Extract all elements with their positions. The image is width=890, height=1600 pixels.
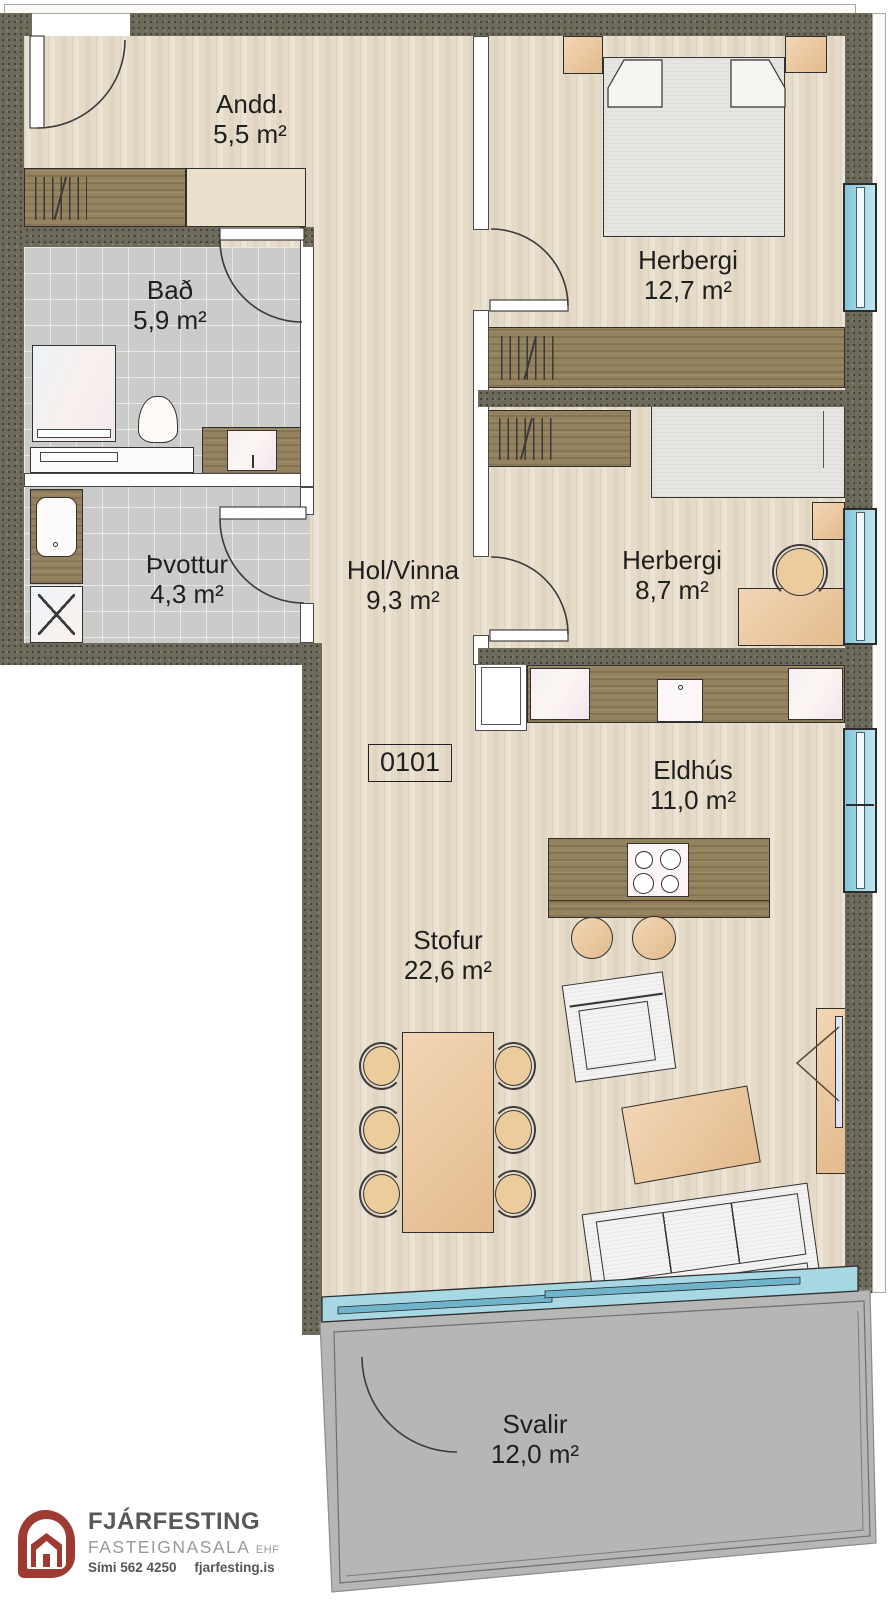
washing-machine-x xyxy=(30,586,83,643)
room-label-andd: Andd.5,5 m² xyxy=(175,90,325,150)
chair-back xyxy=(359,1170,404,1218)
room-label-stofur: Stofur22,6 m² xyxy=(373,926,523,986)
kitchen-sink xyxy=(657,679,703,722)
room-label-herbergi-2: Herbergi8,7 m² xyxy=(597,546,747,606)
exterior-white-area xyxy=(0,665,302,1600)
agency-suffix: EHF xyxy=(256,1544,280,1556)
wall-right xyxy=(845,13,872,183)
dining-table xyxy=(402,1032,494,1233)
nightstand-left xyxy=(563,36,603,74)
shower xyxy=(32,345,116,442)
wall-left xyxy=(0,13,24,665)
window-bedroom-1 xyxy=(843,183,877,312)
dining-chair xyxy=(363,1046,400,1086)
dining-chair xyxy=(495,1110,532,1150)
floor-plan: Andd.5,5 m² Bað5,9 m² Þvottur4,3 m² Hol/… xyxy=(0,0,890,1600)
partition-bath-hall xyxy=(300,227,314,487)
wall-bath-top xyxy=(24,227,220,247)
window-divider xyxy=(846,804,874,806)
island-edge-line xyxy=(549,900,769,902)
room-label-thvottur: Þvottur4,3 m² xyxy=(112,550,262,610)
partition-hall-bedrooms xyxy=(473,36,489,230)
room-label-hol-vinna: Hol/Vinna9,3 m² xyxy=(328,556,478,616)
hanger-rail-icon xyxy=(499,418,554,460)
window-bedroom-2 xyxy=(843,508,877,645)
agency-website: fjarfesting.is xyxy=(194,1560,274,1575)
wall-bedroom1-bedroom2 xyxy=(478,390,845,407)
room-label-eldhus: Eldhús11,0 m² xyxy=(618,756,768,816)
wall-laundry-bottom xyxy=(0,643,322,665)
nightstand-right xyxy=(785,36,827,73)
bath-vanity xyxy=(30,447,194,473)
wall-right xyxy=(845,312,872,508)
chair-back xyxy=(491,1170,536,1218)
room-label-svalir: Svalir12,0 m² xyxy=(460,1410,610,1470)
laundry-sink xyxy=(36,497,77,557)
unit-number-badge: 0101 xyxy=(368,744,452,782)
partition-hall-bedrooms xyxy=(473,310,489,557)
chair-back xyxy=(491,1106,536,1154)
drain-icon xyxy=(53,542,58,547)
agency-type: FASTEIGNASALA EHF xyxy=(88,1537,279,1558)
shower-door xyxy=(37,429,111,438)
wall-right xyxy=(845,645,872,728)
armchair-seat xyxy=(578,1001,656,1070)
partition-laundry-hall xyxy=(300,487,314,515)
wall-living-left xyxy=(302,643,322,1335)
wardrobe-bedroom-2 xyxy=(488,410,631,467)
door-arc-balcony xyxy=(362,1357,457,1452)
hanger-rail-icon xyxy=(501,336,559,380)
room-label-herbergi-1: Herbergi12,7 m² xyxy=(613,246,763,306)
vanity-basin xyxy=(40,452,118,462)
chair-back xyxy=(359,1042,404,1090)
washer-front xyxy=(227,430,277,471)
cabinet-inner xyxy=(481,667,521,725)
hanger-rail-icon xyxy=(35,177,87,220)
window-kitchen xyxy=(843,728,877,893)
duvet-line xyxy=(823,411,825,468)
entrance-closet xyxy=(24,168,186,227)
partition-bath-laundry xyxy=(24,473,305,487)
agency-logo-icon xyxy=(18,1510,75,1578)
faucet-icon xyxy=(678,685,683,690)
faucet-icon xyxy=(252,455,254,468)
agency-phone: Sími 562 4250 xyxy=(88,1560,177,1575)
kitchen-tall-cabinet xyxy=(475,661,527,731)
bed-single xyxy=(651,405,845,498)
bed-double xyxy=(603,57,785,237)
wall-bath-top-stub xyxy=(303,227,314,247)
dishwasher xyxy=(530,668,590,720)
entrance-bench xyxy=(186,168,306,227)
agency-contact: Sími 562 4250 fjarfesting.is xyxy=(88,1560,275,1575)
bedside-shelf xyxy=(812,502,845,540)
laundry-sink-cabinet xyxy=(30,489,83,584)
dining-chair xyxy=(495,1046,532,1086)
wall-bedroom2-kitchen xyxy=(478,648,845,665)
fridge xyxy=(788,668,843,720)
chair-back xyxy=(359,1106,404,1154)
dining-chair xyxy=(495,1174,532,1214)
chair-back xyxy=(772,544,828,600)
room-label-bad: Bað5,9 m² xyxy=(95,276,245,336)
washer-dryer-unit xyxy=(202,427,308,475)
x-mark-icon xyxy=(38,594,75,635)
toilet xyxy=(138,396,178,443)
armchair xyxy=(562,971,677,1082)
bar-stool xyxy=(632,916,676,960)
wall-top xyxy=(130,13,856,36)
bar-stool xyxy=(571,917,613,959)
chair-back xyxy=(491,1042,536,1090)
desk-chair xyxy=(776,548,824,596)
agency-logo: FJÁRFESTING FASTEIGNASALA EHF Sími 562 4… xyxy=(18,1506,308,1590)
tv xyxy=(835,1016,843,1128)
kitchen-island xyxy=(548,838,770,918)
dining-chair xyxy=(363,1110,400,1150)
partition-laundry-hall xyxy=(300,603,314,643)
dining-chair xyxy=(363,1174,400,1214)
wardrobe-bedroom-1 xyxy=(488,327,845,388)
wall-right xyxy=(845,893,872,1293)
agency-name: FJÁRFESTING xyxy=(88,1508,260,1536)
cooktop xyxy=(627,843,689,897)
